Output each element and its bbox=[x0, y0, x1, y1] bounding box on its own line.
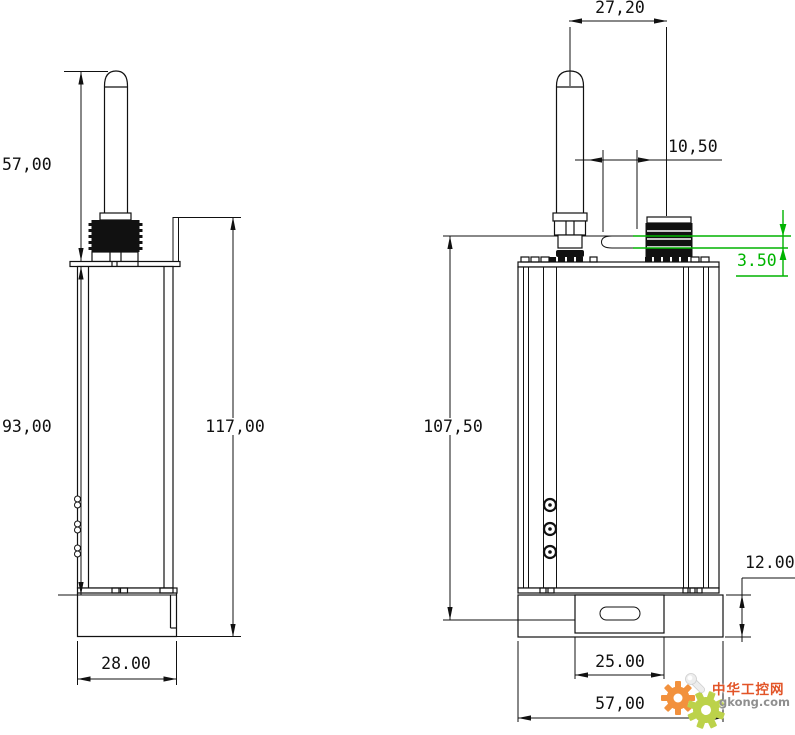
dim-label-rim-offset: 3.50 bbox=[737, 252, 781, 269]
dim-label-overall-height: 117,00 bbox=[203, 418, 267, 435]
dim-label-front-body-height: 107,50 bbox=[420, 418, 486, 435]
drawing-linework bbox=[0, 0, 795, 735]
dim-label-flange-height: 12.00 bbox=[745, 554, 795, 571]
watermark-site-url: gkong.com bbox=[719, 695, 790, 709]
dim-label-mount-slot-span: 25.00 bbox=[591, 653, 649, 670]
dim-label-antenna-height: 57,00 bbox=[2, 156, 55, 173]
dim-label-body-height: 93,00 bbox=[2, 418, 55, 435]
engineering-drawing-canvas: 57,00 93,00 117,00 28.00 27,20 10,50 3.5… bbox=[0, 0, 795, 735]
dim-label-antenna-to-connector: 27,20 bbox=[591, 0, 649, 16]
gear-icon bbox=[661, 681, 695, 715]
dim-label-slot-width: 10,50 bbox=[668, 138, 726, 155]
left-view bbox=[58, 71, 180, 637]
dim-label-body-depth: 28.00 bbox=[97, 655, 155, 672]
dim-label-front-body-width: 57,00 bbox=[591, 695, 649, 712]
